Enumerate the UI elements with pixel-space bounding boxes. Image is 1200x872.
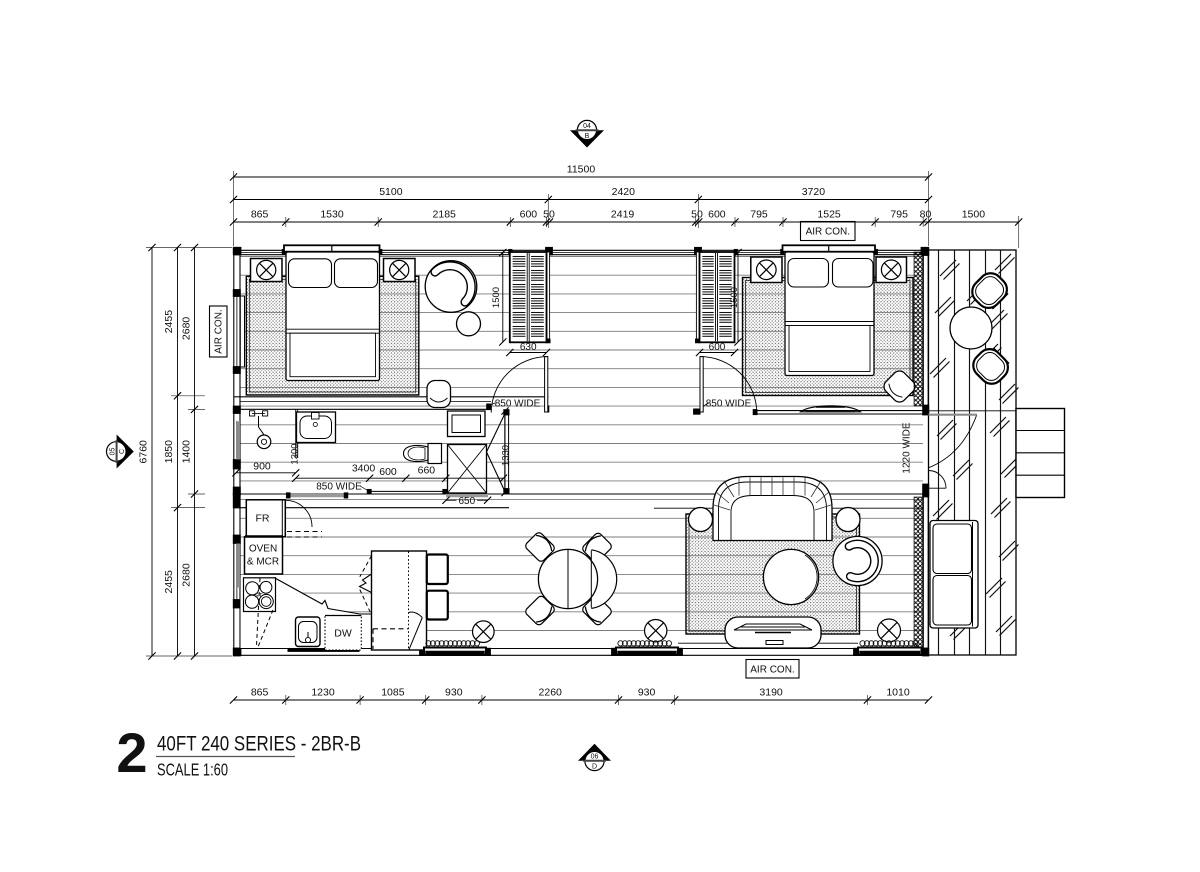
svg-text:AIR CON.: AIR CON. [214,309,225,353]
svg-text:2: 2 [116,721,147,784]
svg-text:05: 05 [109,448,116,456]
svg-text:2680: 2680 [181,563,193,587]
svg-text:5100: 5100 [379,186,403,198]
svg-text:AIR CON.: AIR CON. [806,227,850,238]
svg-text:1525: 1525 [817,209,841,221]
svg-text:2680: 2680 [181,317,193,341]
svg-text:& MCR: & MCR [247,557,279,568]
svg-text:600: 600 [708,209,726,221]
svg-text:1500: 1500 [729,287,740,308]
svg-text:1085: 1085 [381,687,405,699]
svg-text:1500: 1500 [962,209,986,221]
svg-text:650: 650 [458,496,475,507]
svg-text:1500: 1500 [491,287,502,308]
svg-text:1850: 1850 [163,440,175,464]
svg-text:930: 930 [445,687,463,699]
svg-text:1300: 1300 [290,443,301,464]
svg-text:AIR CON.: AIR CON. [750,665,794,676]
svg-text:OVEN: OVEN [249,544,277,555]
svg-text:6760: 6760 [138,440,150,464]
svg-text:1400: 1400 [181,440,193,464]
svg-text:06: 06 [591,754,599,761]
svg-text:850 WIDE: 850 WIDE [495,398,541,409]
svg-text:50: 50 [543,209,555,221]
svg-text:D: D [592,764,597,771]
svg-text:3190: 3190 [759,687,783,699]
svg-text:2260: 2260 [539,687,563,699]
svg-text:2419: 2419 [611,209,635,221]
svg-text:2420: 2420 [612,186,636,198]
svg-text:80: 80 [920,209,932,221]
svg-text:930: 930 [638,687,656,699]
svg-text:40FT 240 SERIES - 2BR-B: 40FT 240 SERIES - 2BR-B [157,733,361,756]
svg-text:FR: FR [256,513,270,525]
svg-text:11500: 11500 [567,164,596,176]
svg-text:630: 630 [520,342,537,353]
svg-text:660: 660 [418,465,436,477]
svg-text:2455: 2455 [163,570,175,594]
svg-text:600: 600 [709,342,726,353]
svg-text:B: B [585,133,590,140]
svg-text:1220 WIDE: 1220 WIDE [902,422,913,473]
svg-text:795: 795 [750,209,768,221]
svg-text:04: 04 [583,123,591,130]
svg-text:600: 600 [520,209,538,221]
svg-text:SCALE 1:60: SCALE 1:60 [157,760,228,780]
svg-text:3400: 3400 [352,463,376,475]
svg-text:865: 865 [251,687,269,699]
svg-text:850 WIDE: 850 WIDE [706,398,752,409]
svg-text:850 WIDE: 850 WIDE [316,482,362,493]
svg-text:DW: DW [334,628,352,640]
svg-text:600: 600 [379,466,397,478]
svg-text:900: 900 [253,460,271,472]
svg-text:3720: 3720 [802,186,826,198]
svg-text:865: 865 [251,209,269,221]
svg-text:C: C [119,449,126,454]
svg-text:2185: 2185 [433,209,457,221]
svg-text:1330: 1330 [501,445,512,466]
svg-text:1230: 1230 [311,687,335,699]
svg-text:1010: 1010 [886,687,910,699]
svg-text:2455: 2455 [163,310,175,334]
svg-text:1530: 1530 [320,209,344,221]
svg-text:50: 50 [691,209,703,221]
svg-text:795: 795 [890,209,908,221]
